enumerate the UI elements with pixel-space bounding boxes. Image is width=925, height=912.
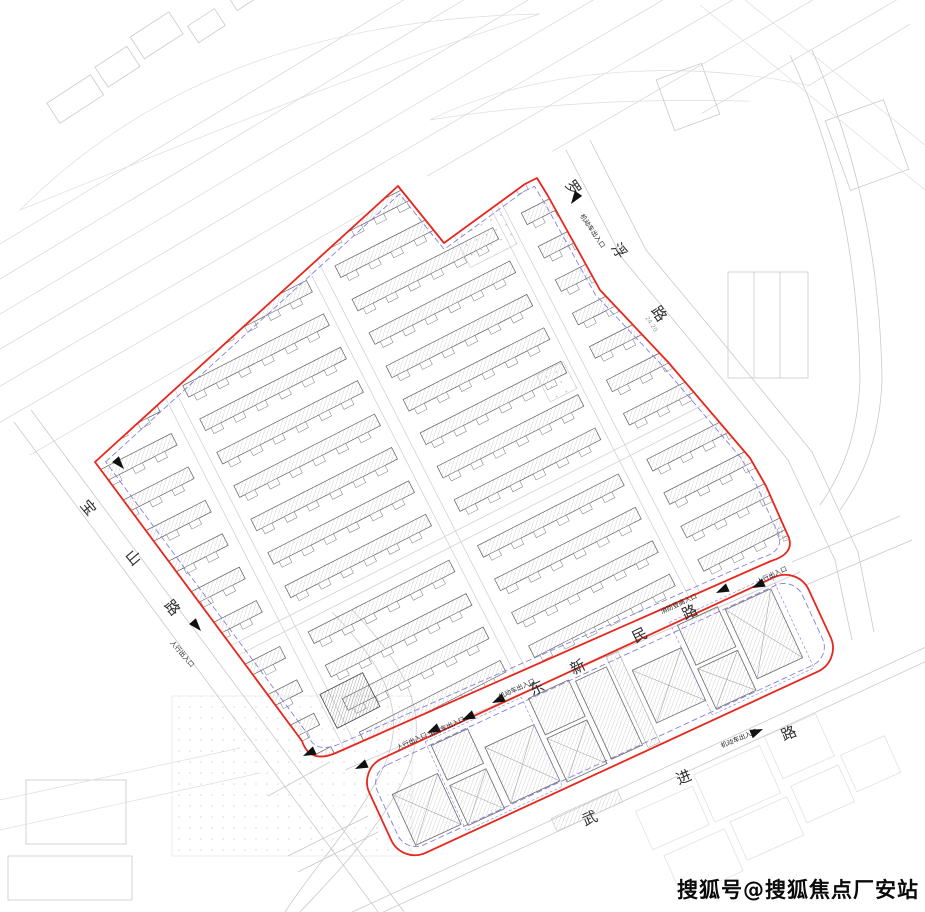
entrance-label: 人行出入口	[168, 638, 196, 668]
building-slab	[521, 141, 671, 230]
dimension-label: 12.42	[774, 526, 789, 545]
garden-plaza	[537, 362, 577, 402]
watermark: 搜狐号@搜狐焦点厂安站	[677, 874, 919, 904]
road-label-baoshan: 宝 山 路	[76, 496, 183, 619]
building-slab	[116, 601, 266, 690]
building-slab	[149, 247, 299, 336]
road-label-char: 路	[160, 596, 183, 619]
building-slab	[555, 208, 705, 297]
building-slab	[258, 880, 408, 912]
entrance-label: 机动车出入口	[578, 212, 607, 249]
road-label-char: 新	[567, 656, 588, 679]
site-plan-canvas: 罗 浮 路 宝 山 路 东 新 民 路 武 进 路 机动车出入口 人行出入口 人…	[0, 0, 925, 912]
building-slab	[30, 434, 180, 523]
building-slab	[0, 300, 112, 389]
building-slab	[470, 41, 620, 130]
building-slab	[487, 74, 637, 163]
building-slab	[715, 521, 865, 610]
context-right	[656, 0, 925, 510]
context-buildings-topleft	[41, 0, 315, 130]
building-slab	[623, 342, 773, 431]
road-label-char: 路	[778, 722, 799, 744]
road-label-char: 山	[121, 546, 144, 569]
road-label-char: 浮	[607, 240, 630, 263]
site-plan-svg: 罗 浮 路 宝 山 路 东 新 民 路 武 进 路 机动车出入口 人行出入口 人…	[0, 0, 925, 912]
building-slab	[13, 400, 163, 489]
building-slab	[241, 847, 391, 912]
road-label-char: 宝	[76, 496, 99, 519]
building-slab	[301, 127, 451, 216]
main-parcel-buildings	[0, 8, 925, 912]
building-slab	[589, 275, 739, 364]
